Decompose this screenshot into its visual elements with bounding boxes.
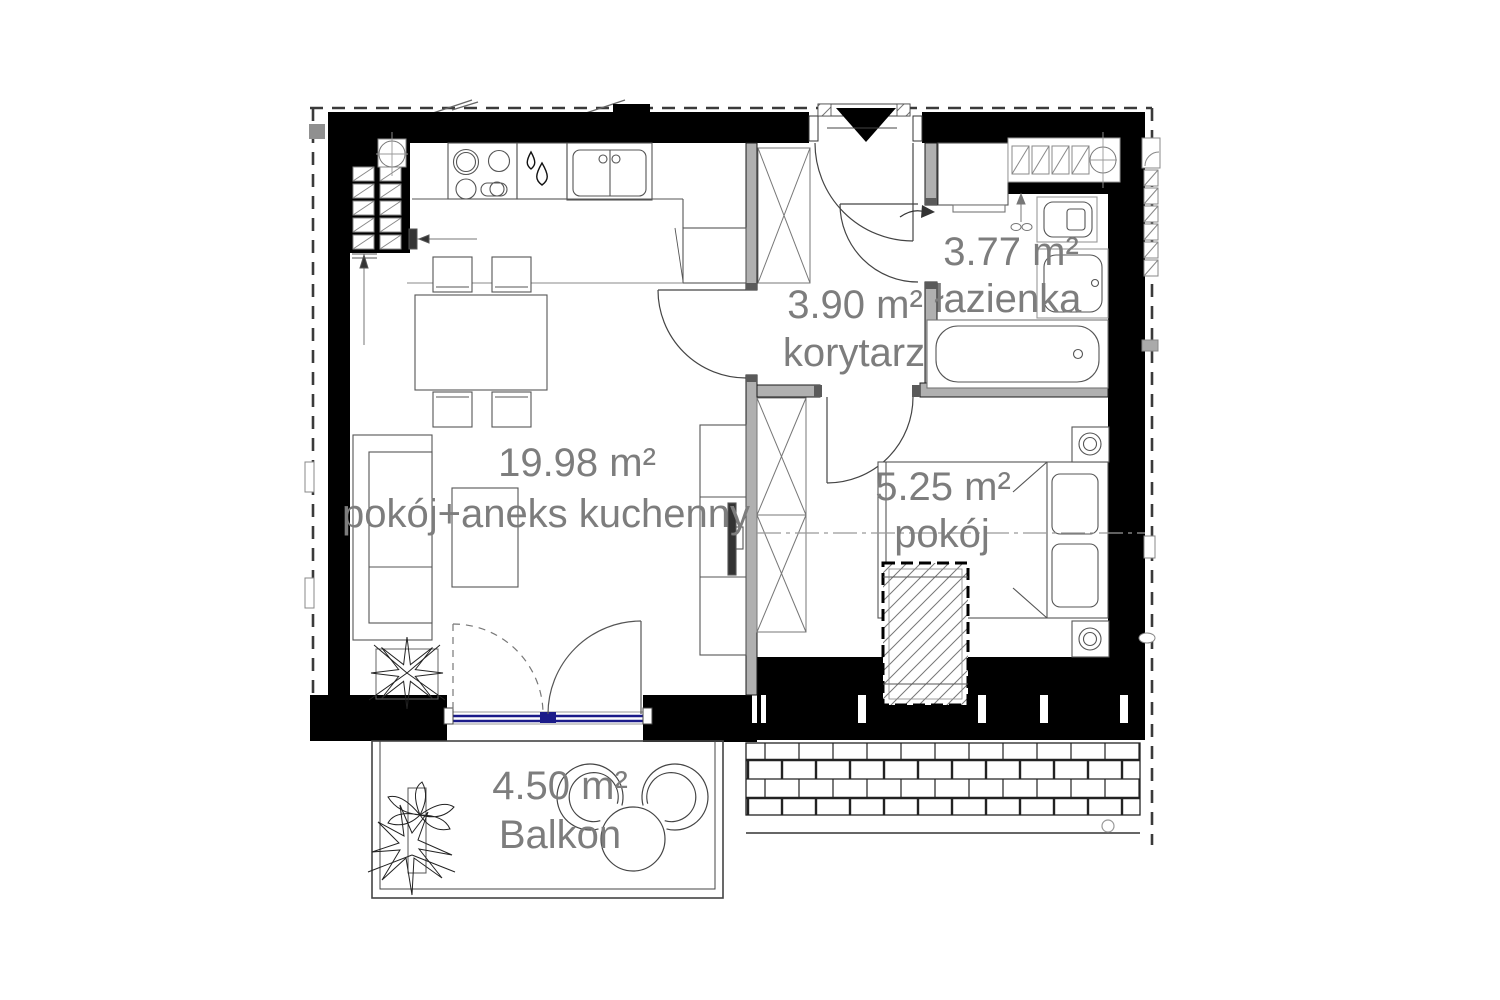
survey-tick-marks [430, 100, 625, 114]
corridor-area-label: 3.90 m² [787, 285, 923, 325]
facade-brick-detail [746, 743, 1140, 833]
kitchen-sink [567, 143, 652, 200]
vent-symbol [1011, 194, 1032, 231]
corridor-name-label: korytarz [783, 333, 925, 373]
corner-marker [309, 124, 325, 139]
bathroom-door [840, 204, 918, 282]
bedroom-wardrobe [757, 398, 806, 632]
bedroom-name-label: pokój [894, 514, 990, 554]
living-room-door [658, 290, 746, 378]
living-room-name-label: pokój+aneks kuchenny [342, 494, 750, 534]
bedroom-window [883, 563, 968, 705]
bathroom-radiator [1008, 132, 1120, 188]
pillow [1052, 474, 1098, 534]
kitchen-hob [448, 143, 517, 199]
bathtub [927, 320, 1108, 388]
bathroom-area-label: 3.77 m² [943, 232, 1079, 272]
bathroom-name-label: łazienka [935, 279, 1082, 319]
balcony-door [444, 621, 652, 724]
tv-cabinet [700, 425, 746, 655]
washing-machine [938, 143, 1008, 212]
living-room-area-label: 19.98 m² [498, 443, 656, 483]
balcony-area-label: 4.50 m² [492, 766, 628, 806]
floor-plan: 19.98 m² pokój+aneks kuchenny 3.90 m² ko… [0, 0, 1500, 1000]
balcony-name-label: Balkon [499, 815, 621, 855]
pillow [1052, 544, 1098, 607]
sofa [353, 435, 432, 640]
corridor-wardrobe [758, 148, 810, 283]
bedroom-area-label: 5.25 m² [875, 467, 1011, 507]
gas-flame-icon [517, 143, 567, 199]
dining-table-and-chairs [415, 257, 547, 427]
entrance-marker-triangle [836, 108, 896, 142]
balcony-plant [368, 782, 455, 895]
